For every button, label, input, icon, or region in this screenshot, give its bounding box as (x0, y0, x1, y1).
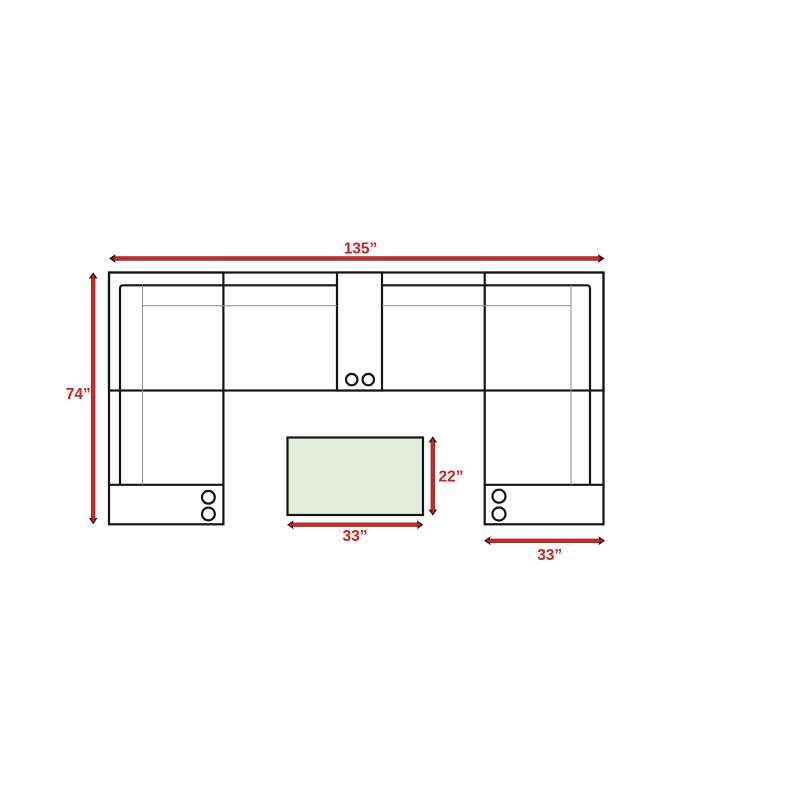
svg-text:135”: 135” (344, 240, 378, 257)
svg-text:33”: 33” (343, 528, 368, 545)
svg-text:74”: 74” (66, 386, 91, 403)
svg-text:22”: 22” (439, 469, 464, 486)
svg-text:33”: 33” (537, 547, 562, 564)
